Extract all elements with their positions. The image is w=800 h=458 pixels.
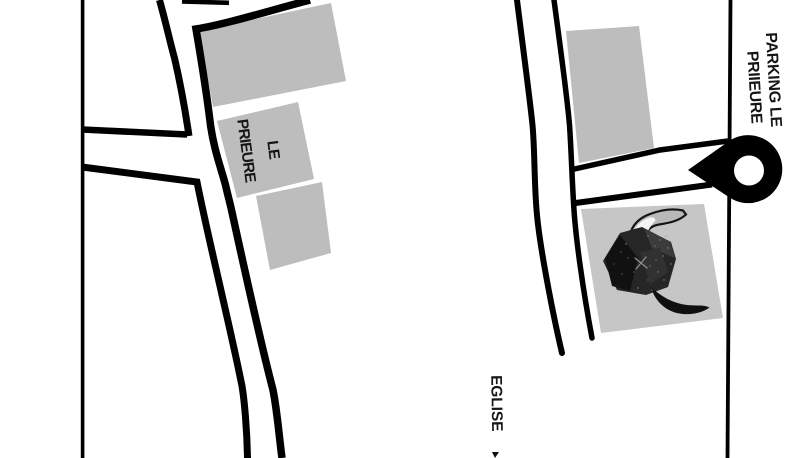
svg-text:LE: LE [263, 140, 282, 161]
svg-text:EGLISE: EGLISE [487, 375, 505, 432]
